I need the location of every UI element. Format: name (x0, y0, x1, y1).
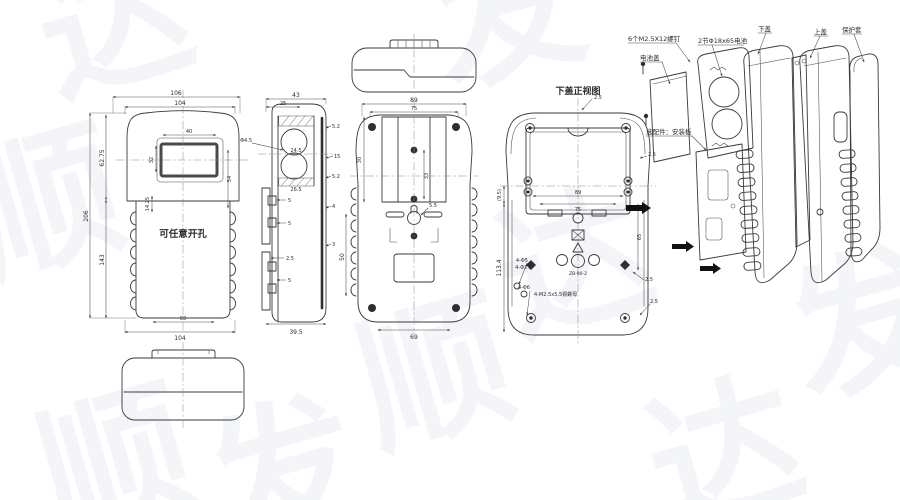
dim-bottom-width: 104 (174, 335, 186, 342)
dim-back-outer-width: 89 (410, 97, 418, 104)
dim-side-pocket: 26.5 (290, 187, 301, 193)
label-sleeve: 保护套 (842, 25, 862, 34)
dim-side-wall: 3 (332, 242, 335, 248)
drawing-canvas: 顺达发顺达发顺达发 (0, 0, 900, 500)
dim-right-drop: 54 (227, 176, 233, 182)
dim-bottom-inner-width: 69 (180, 316, 186, 322)
cover-view: 下盖正视图 (496, 85, 658, 344)
dim-side-window: 15 (334, 154, 340, 160)
front-view: 106 104 40 32 54 14.25 62.75 143 206 69 … (83, 90, 250, 342)
side-view: 43 25 Φ4.5 24.5 26.5 5.2 15 5.2 4 3 5 5 … (240, 92, 340, 336)
dim-side-boss-bottom: 5 (288, 278, 291, 284)
callout-hole-b: 4-Φ6 (518, 285, 530, 291)
dim-joint-offset: 14.25 (145, 197, 151, 211)
dim-side-boss-mid: 5 (288, 221, 291, 227)
callout-hole-b2: 4-M2.5x5.5铜螺母 (534, 291, 577, 298)
dim-body-height: 143 (99, 254, 106, 266)
dim-side-rib: 4 (332, 204, 335, 210)
dim-back-box-height: 30 (357, 157, 363, 163)
label-bottom-shell: 下盖 (758, 24, 772, 33)
dim-front-inner-width: 104 (174, 100, 186, 107)
dim-side-bottom-depth: 39.5 (289, 329, 303, 336)
label-optional-part: 选配件：安装板 (646, 127, 692, 136)
dim-cover-inner-height: 113.4 (496, 259, 503, 276)
bottom-shell-ribs (736, 150, 761, 271)
dim-side-battery: 24.5 (290, 148, 301, 154)
dim-back-bottom-width: 69 (410, 334, 418, 341)
screw-glyphs (641, 62, 648, 126)
dim-head-height: 62.75 (99, 149, 106, 166)
dim-back-lower-height: 50 (339, 253, 346, 261)
dim-cover-corner-b: 2.5 (650, 299, 658, 305)
technical-drawing: 106 104 40 32 54 14.25 62.75 143 206 69 … (0, 0, 900, 500)
label-screws: 6个M2.5X12螺钉 (628, 34, 681, 43)
dim-cover-edge-offset: (9.5) (497, 189, 503, 201)
dim-side-top-lip: 5.2 (332, 124, 340, 130)
dim-cover-top-gap: 2.5 (594, 95, 602, 101)
exploded-view: 6个M2.5X12螺钉 电池盖 2节Φ18x65电池 下盖 上盖 保护套 选配件… (626, 24, 880, 283)
back-view: 89 75 30 33 5.5 50 69 (339, 97, 478, 341)
dim-back-keyhole: 5.5 (429, 203, 437, 209)
dim-side-gap: 2.5 (286, 256, 294, 262)
dim-cover-span-height: 65 (637, 234, 643, 240)
dim-side-hole: Φ4.5 (240, 138, 252, 144)
top-view (352, 34, 476, 96)
mold-mark: ZB-90-2 (569, 271, 587, 277)
callout-hole-a: 4-Φ5 (516, 258, 528, 264)
front-view-note: 可任意开孔 (159, 228, 207, 240)
label-battery-cover: 电池盖 (640, 53, 660, 62)
end-view (122, 342, 244, 430)
dim-side-top-depth: 25 (280, 101, 286, 107)
dim-screen-width: 40 (186, 129, 192, 135)
dim-screen-height: 32 (149, 157, 155, 163)
dim-cover-span-narrow: 75 (575, 207, 581, 213)
callout-hole-a2: 4-Φ2.5 (515, 265, 532, 271)
dim-cover-right-gap: 2.5 (648, 152, 656, 158)
label-top-shell: 上盖 (814, 27, 828, 36)
dim-side-bottom-lip: 5.2 (332, 174, 340, 180)
dim-cover-corner-a: 2.5 (645, 277, 653, 283)
dim-front-outer-width: 106 (170, 90, 182, 97)
dim-back-screw-spacing: 33 (424, 173, 430, 179)
dim-side-boss-top: 5 (288, 198, 291, 204)
dim-back-inner-width: 75 (411, 106, 417, 112)
dim-cover-span-wide: 89 (575, 190, 581, 196)
label-batteries: 2节Φ18x65电池 (698, 36, 748, 45)
dim-side-depth: 43 (292, 92, 300, 99)
dim-total-height: 206 (83, 210, 90, 222)
